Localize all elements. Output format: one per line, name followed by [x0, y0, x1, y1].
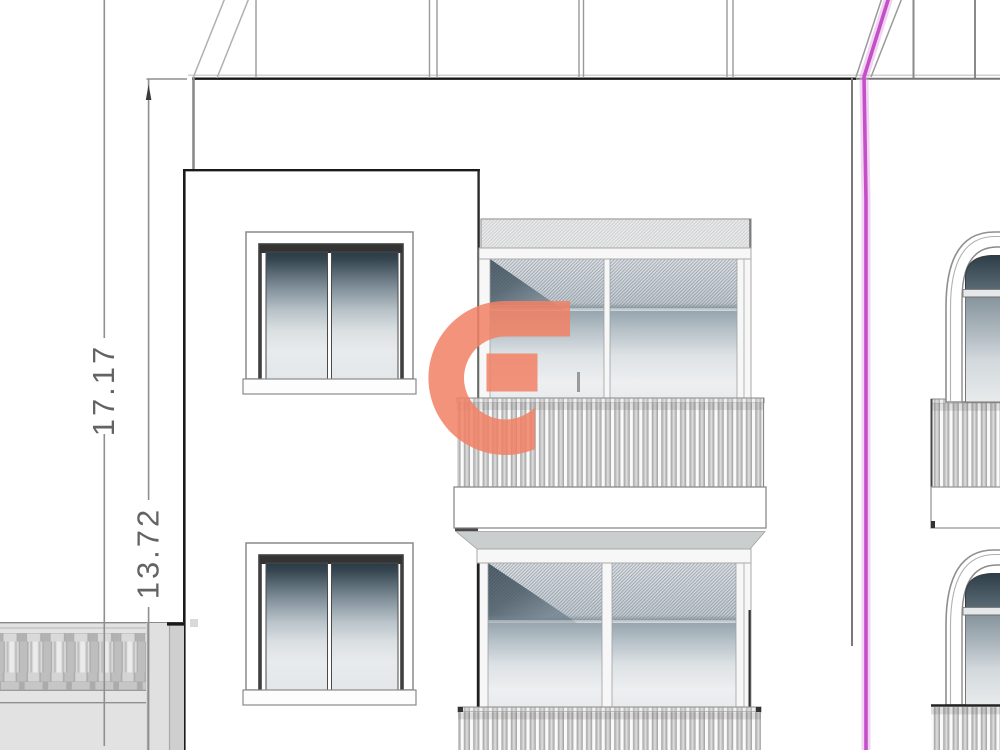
- svg-text:13.72: 13.72: [131, 507, 166, 600]
- svg-text:17.17: 17.17: [86, 344, 121, 437]
